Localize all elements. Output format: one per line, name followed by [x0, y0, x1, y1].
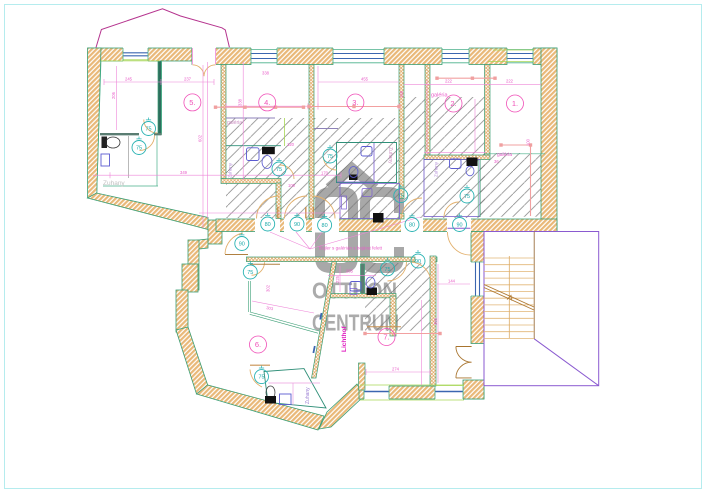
svg-text:7.: 7. [383, 333, 389, 342]
svg-text:349: 349 [180, 170, 188, 175]
svg-text:4.: 4. [264, 98, 270, 107]
svg-text:Zuhany: Zuhany [434, 161, 439, 177]
svg-text:120: 120 [287, 142, 295, 147]
svg-text:Zuhany: Zuhany [305, 387, 311, 404]
svg-text:Zuhany: Zuhany [103, 180, 125, 187]
svg-text:338: 338 [238, 98, 243, 106]
svg-text:75: 75 [464, 194, 470, 200]
svg-text:80: 80 [265, 222, 271, 228]
svg-text:Zuhany: Zuhany [228, 162, 233, 178]
svg-text:36: 36 [494, 159, 499, 164]
svg-text:338: 338 [262, 71, 270, 76]
svg-text:75: 75 [247, 270, 253, 276]
svg-text:274: 274 [392, 367, 400, 372]
svg-text:100: 100 [288, 183, 296, 188]
svg-text:75: 75 [276, 167, 282, 173]
svg-text:245: 245 [125, 77, 133, 82]
svg-text:75: 75 [327, 154, 333, 160]
svg-text:455: 455 [361, 77, 369, 82]
svg-text:75: 75 [384, 267, 390, 273]
svg-text:Lichthof: Lichthof [341, 326, 348, 352]
svg-text:2.: 2. [450, 99, 456, 108]
svg-text:365: 365 [433, 317, 438, 325]
svg-text:222: 222 [445, 79, 453, 84]
svg-text:100: 100 [526, 138, 531, 146]
svg-text:285: 285 [346, 269, 354, 274]
svg-text:302: 302 [266, 284, 271, 292]
svg-text:75: 75 [145, 127, 151, 133]
svg-text:144: 144 [448, 279, 456, 284]
svg-text:galéria: galéria [431, 93, 448, 99]
svg-text:1.: 1. [512, 99, 518, 108]
svg-text:90: 90 [456, 223, 462, 229]
svg-text:3.: 3. [352, 98, 358, 107]
svg-text:602: 602 [198, 134, 203, 142]
svg-text:206: 206 [111, 91, 116, 99]
svg-text:5.: 5. [189, 98, 195, 107]
svg-text:90: 90 [239, 242, 245, 248]
svg-text:galéria: galéria [227, 120, 242, 126]
svg-text:158: 158 [399, 90, 404, 98]
svg-text:90: 90 [294, 222, 300, 228]
svg-text:Bojler s galérián s bejárat fe: Bojler s galérián s bejárat felett [319, 246, 383, 251]
svg-text:222: 222 [506, 79, 514, 84]
svg-text:80: 80 [409, 223, 415, 229]
svg-text:80: 80 [322, 223, 328, 229]
svg-text:galéria: galéria [497, 152, 512, 158]
svg-text:90: 90 [415, 259, 421, 265]
svg-text:75: 75 [398, 194, 404, 200]
svg-text:237: 237 [184, 77, 192, 82]
svg-text:75: 75 [136, 146, 142, 152]
svg-text:Zuhany: Zuhany [387, 147, 393, 164]
svg-text:170: 170 [321, 171, 329, 176]
svg-text:225: 225 [335, 275, 340, 283]
svg-text:75: 75 [258, 375, 264, 381]
svg-text:6.: 6. [255, 340, 261, 349]
